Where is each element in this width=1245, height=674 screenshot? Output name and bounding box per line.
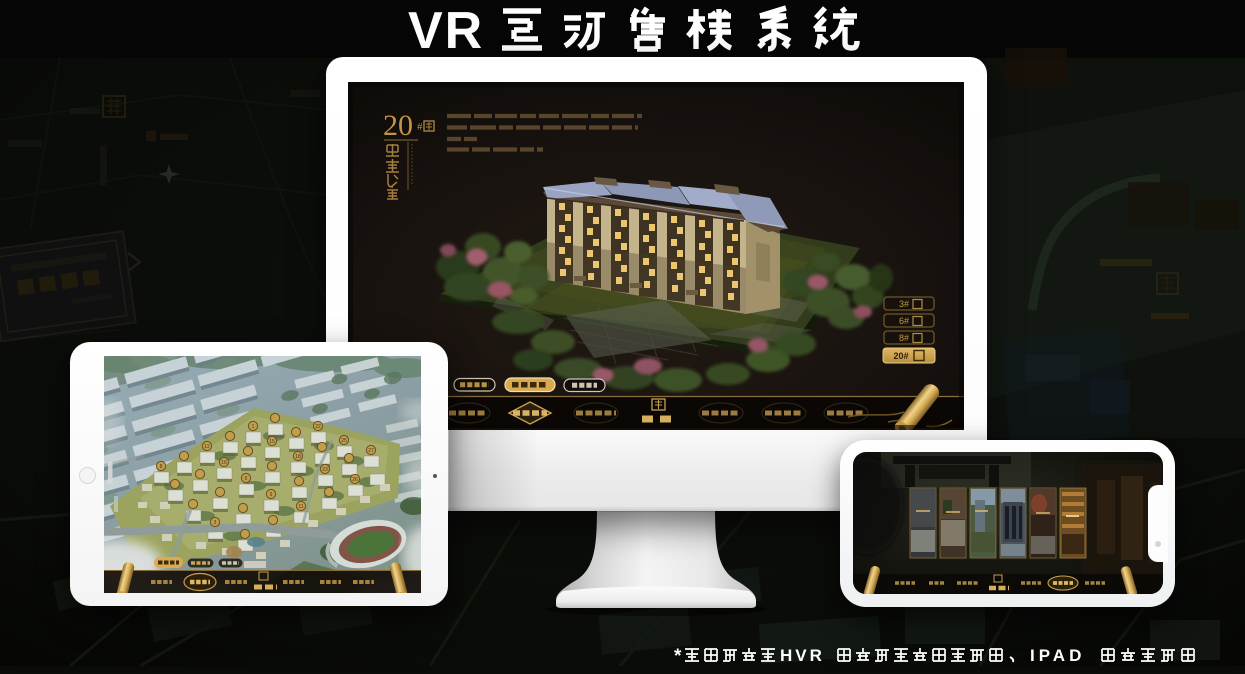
svg-text:*: * — [674, 646, 682, 667]
svg-text:IPAD: IPAD — [1030, 646, 1085, 665]
svg-text:HVR: HVR — [780, 646, 825, 665]
svg-text:6#: 6# — [899, 316, 909, 326]
svg-text:20: 20 — [383, 109, 413, 142]
svg-text:3#: 3# — [899, 299, 909, 309]
svg-text:#: # — [417, 121, 423, 133]
svg-text:VR: VR — [408, 2, 484, 60]
svg-text:20#: 20# — [893, 351, 908, 361]
svg-text:8#: 8# — [899, 333, 909, 343]
